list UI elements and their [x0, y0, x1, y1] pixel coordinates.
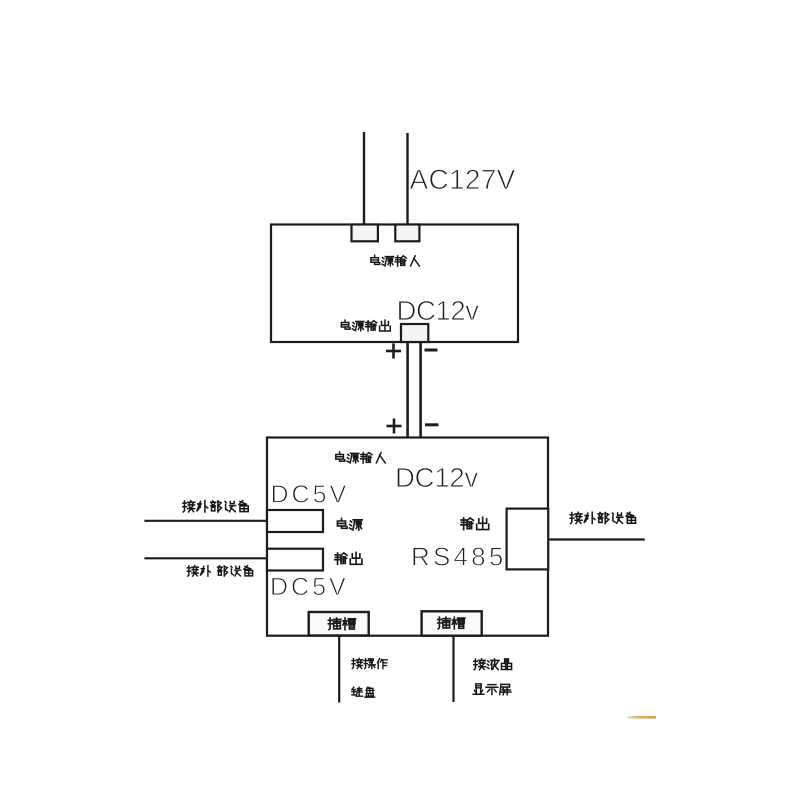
- svg-text:DC5V: DC5V: [270, 573, 349, 601]
- svg-text:RS485: RS485: [411, 542, 507, 572]
- svg-text:DC12v: DC12v: [397, 295, 480, 326]
- svg-text:DC12v: DC12v: [395, 462, 479, 493]
- svg-text:AC127V: AC127V: [410, 164, 516, 195]
- svg-text:DC5V: DC5V: [271, 481, 350, 509]
